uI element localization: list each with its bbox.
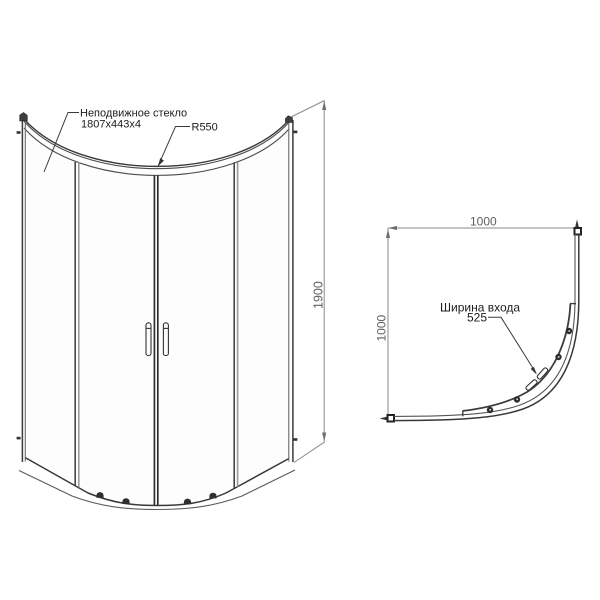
svg-text:1900: 1900 <box>311 281 325 309</box>
svg-text:R550: R550 <box>192 122 218 134</box>
svg-text:525: 525 <box>467 311 487 325</box>
svg-text:1000: 1000 <box>375 314 389 341</box>
svg-text:1000: 1000 <box>470 215 497 229</box>
svg-text:1807х443х4: 1807х443х4 <box>81 119 141 131</box>
